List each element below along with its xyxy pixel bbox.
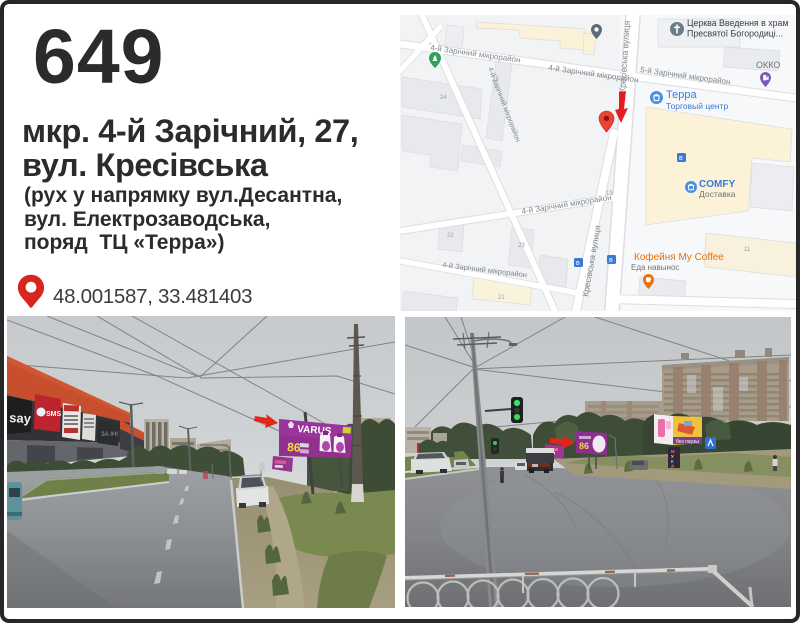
- svg-text:Пресвятої Богородиці...: Пресвятої Богородиці...: [687, 29, 783, 39]
- svg-text:Кофейня My Coffee: Кофейня My Coffee: [634, 251, 724, 263]
- svg-text:ОККО: ОККО: [756, 60, 780, 70]
- svg-text:11: 11: [744, 247, 751, 253]
- svg-text:ЗА ІНІ: ЗА ІНІ: [101, 432, 118, 438]
- svg-text:в: в: [576, 260, 580, 267]
- svg-text:в: в: [679, 155, 683, 162]
- svg-text:19: 19: [606, 191, 613, 197]
- svg-text:Доставка: Доставка: [699, 189, 736, 199]
- svg-text:86: 86: [287, 440, 301, 455]
- svg-text:24: 24: [440, 95, 447, 101]
- svg-text:без паузы: без паузы: [676, 439, 699, 445]
- svg-text:Торговый центр: Торговый центр: [666, 101, 728, 111]
- svg-text:86: 86: [579, 441, 589, 451]
- svg-text:в: в: [609, 257, 613, 264]
- svg-text:21: 21: [498, 295, 505, 301]
- svg-text:Еда навынос: Еда навынос: [631, 263, 679, 272]
- svg-text:Церква Введення в храм: Церква Введення в храм: [687, 18, 789, 28]
- svg-text:23: 23: [518, 243, 525, 249]
- svg-text:27: 27: [492, 77, 499, 83]
- svg-text:say: say: [9, 410, 32, 426]
- svg-text:Терра: Терра: [666, 89, 697, 101]
- svg-text:SMS: SMS: [46, 411, 62, 418]
- svg-text:22: 22: [447, 233, 454, 239]
